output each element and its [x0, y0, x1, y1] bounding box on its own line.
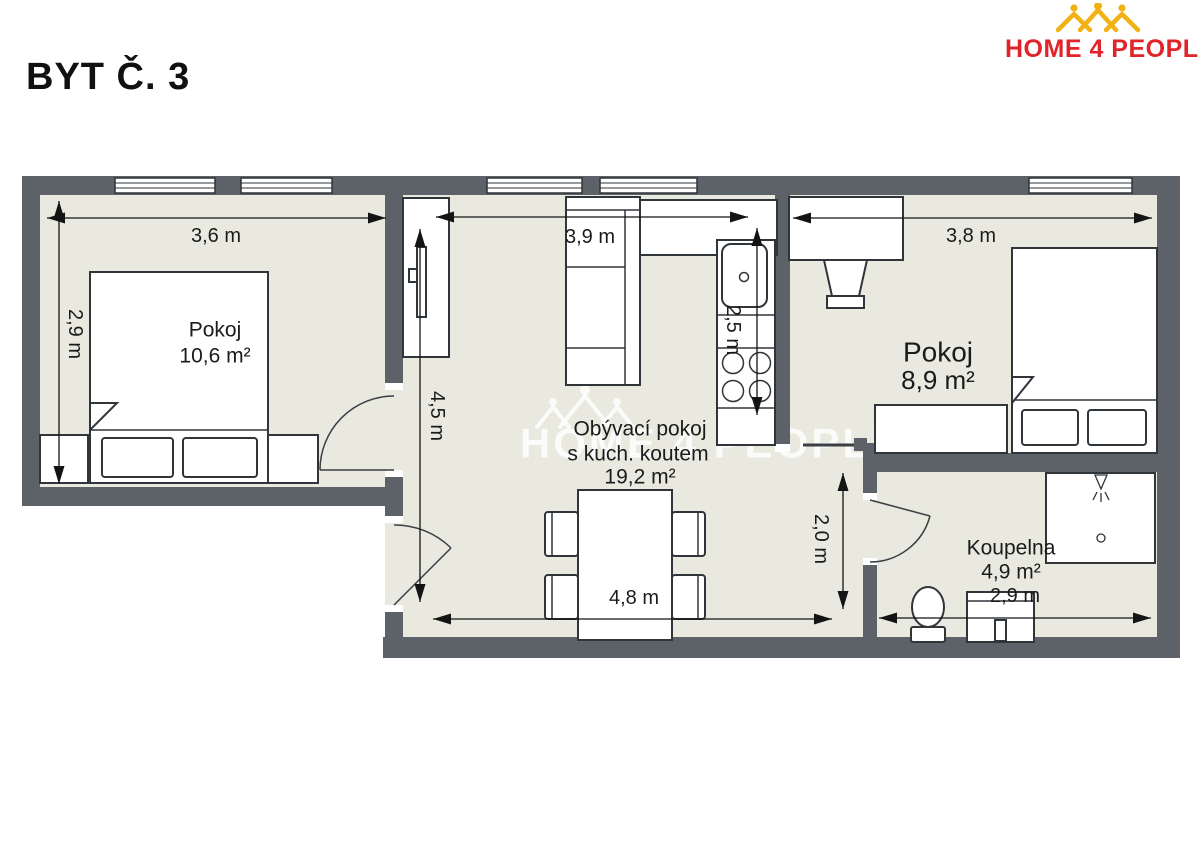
wall-left — [22, 176, 40, 506]
shower — [1046, 473, 1155, 563]
floorplan-page: BYT Č. 3 HOME 4 PEOPLE — [0, 0, 1200, 849]
svg-text:3,8 m: 3,8 m — [946, 225, 996, 247]
nightstand — [40, 435, 88, 483]
opening-bathroom-door — [863, 500, 877, 558]
double-bed — [90, 272, 268, 483]
bed — [1012, 248, 1157, 453]
dining-table — [578, 490, 672, 640]
bathroom-name: Koupelna — [967, 537, 1056, 560]
chair — [545, 575, 578, 619]
living-area: 19,2 m² — [604, 466, 675, 489]
pillow — [1088, 410, 1146, 445]
dresser — [875, 405, 1007, 453]
living-name-line1: Obývací pokoj — [573, 418, 706, 441]
svg-text:2,5 m: 2,5 m — [722, 305, 744, 355]
kitchen-sink — [722, 244, 767, 307]
bedroom1-area: 10,6 m² — [179, 345, 250, 368]
desk-chair — [824, 260, 867, 308]
living-name-line2: s kuch. koutem — [567, 443, 708, 466]
tv-cabinet — [403, 198, 449, 357]
window — [115, 178, 215, 193]
svg-text:2,9 m: 2,9 m — [990, 585, 1040, 607]
opening-entrance-door — [385, 523, 403, 605]
pillow — [1022, 410, 1078, 445]
svg-text:4,8 m: 4,8 m — [609, 587, 659, 609]
wall-bedroom1-bottom — [22, 487, 403, 506]
svg-text:2,0 m: 2,0 m — [810, 514, 832, 564]
bathroom-area: 4,9 m² — [981, 561, 1041, 584]
pillow — [102, 438, 173, 477]
chair — [672, 575, 705, 619]
wall-right — [1157, 176, 1180, 658]
bedroom2-area: 8,9 m² — [901, 365, 975, 395]
svg-text:4,5 m: 4,5 m — [426, 391, 448, 441]
pillow — [183, 438, 257, 477]
chair — [672, 512, 705, 556]
window — [1029, 178, 1132, 193]
tv — [417, 247, 426, 317]
svg-text:3,9 m: 3,9 m — [565, 226, 615, 248]
window — [241, 178, 332, 193]
window — [600, 178, 697, 193]
svg-text:2,9 m: 2,9 m — [64, 309, 86, 359]
window — [487, 178, 582, 193]
desk — [789, 197, 903, 260]
svg-text:3,6 m: 3,6 m — [191, 225, 241, 247]
wall-bedroom2-bathroom — [863, 453, 1157, 472]
toilet — [911, 587, 945, 642]
floor-plan: HOME 4 PEOPLE — [0, 0, 1200, 849]
opening-bedroom1-door — [385, 390, 403, 470]
bedroom1-name: Pokoj — [189, 319, 242, 342]
chair — [545, 512, 578, 556]
nightstand — [268, 435, 318, 483]
bedroom2-name: Pokoj — [903, 337, 973, 368]
wall-bottom — [383, 637, 1180, 658]
